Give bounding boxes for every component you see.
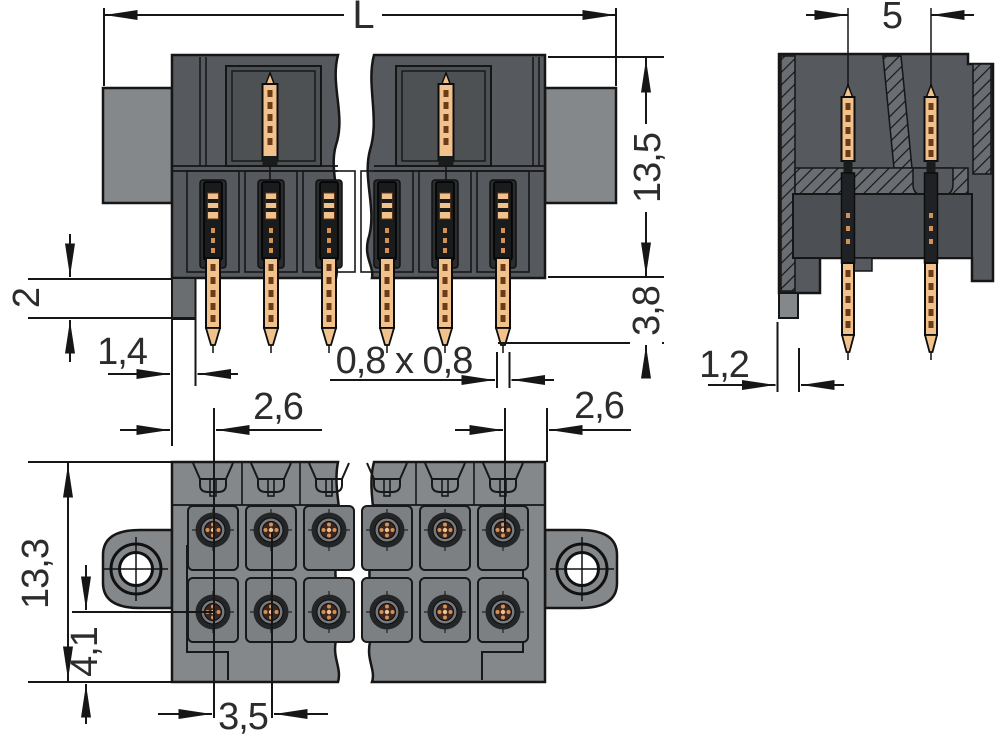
dim-row-spacing: 5 bbox=[806, 0, 974, 37]
bottom-view bbox=[103, 462, 617, 682]
dim-pitch-label: 3,5 bbox=[218, 696, 268, 734]
dim-foot-side-label: 1,2 bbox=[699, 344, 749, 386]
solder-pin bbox=[436, 182, 454, 353]
solder-pin bbox=[262, 182, 280, 353]
front-right-flange bbox=[545, 88, 616, 203]
back-row-pin bbox=[439, 73, 454, 180]
dim-pin-cross-section: 0,8 x 0,8 bbox=[330, 340, 554, 388]
dim-row-spacing-label: 5 bbox=[882, 0, 902, 37]
dim-protrusion-label: 3,8 bbox=[626, 286, 668, 336]
side-pin-front bbox=[842, 85, 855, 360]
side-snap-foot bbox=[779, 293, 798, 318]
back-row-pin bbox=[263, 73, 278, 180]
solder-pin bbox=[494, 182, 512, 353]
bottom-housing-right bbox=[369, 462, 545, 682]
front-snap-foot bbox=[172, 278, 196, 319]
side-pin-back bbox=[925, 85, 938, 360]
dim-height-label: 13,5 bbox=[627, 133, 669, 203]
solder-pin bbox=[378, 182, 396, 353]
front-view bbox=[103, 55, 616, 353]
solder-pin bbox=[320, 182, 338, 353]
dim-row-edge-label: 4,1 bbox=[64, 627, 106, 677]
front-left-flange bbox=[103, 88, 172, 203]
dim-depth-label: 13,3 bbox=[15, 539, 57, 609]
dim-thickness-label: 2 bbox=[6, 288, 48, 308]
dim-foot-front-label: 1,4 bbox=[97, 331, 148, 373]
dim-cross-section-label: 0,8 x 0,8 bbox=[336, 340, 473, 382]
dim-overall-length-label: L bbox=[352, 0, 373, 37]
side-housing-base bbox=[793, 194, 972, 258]
dim-edge-pin-left-label: 2,6 bbox=[253, 386, 303, 428]
side-view bbox=[779, 8, 993, 360]
bottom-housing-left bbox=[172, 462, 341, 682]
solder-pin bbox=[204, 182, 222, 353]
technical-drawing: L 5 13,5 3,8 2 bbox=[0, 0, 1000, 734]
dim-foot-width-side: 1,2 bbox=[699, 322, 844, 392]
connector-dimension-drawing: L 5 13,5 3,8 2 bbox=[0, 0, 1000, 734]
dim-pin-protrusion: 3,8 bbox=[498, 277, 668, 378]
dim-pin-edge-right-label: 2,6 bbox=[574, 385, 624, 427]
